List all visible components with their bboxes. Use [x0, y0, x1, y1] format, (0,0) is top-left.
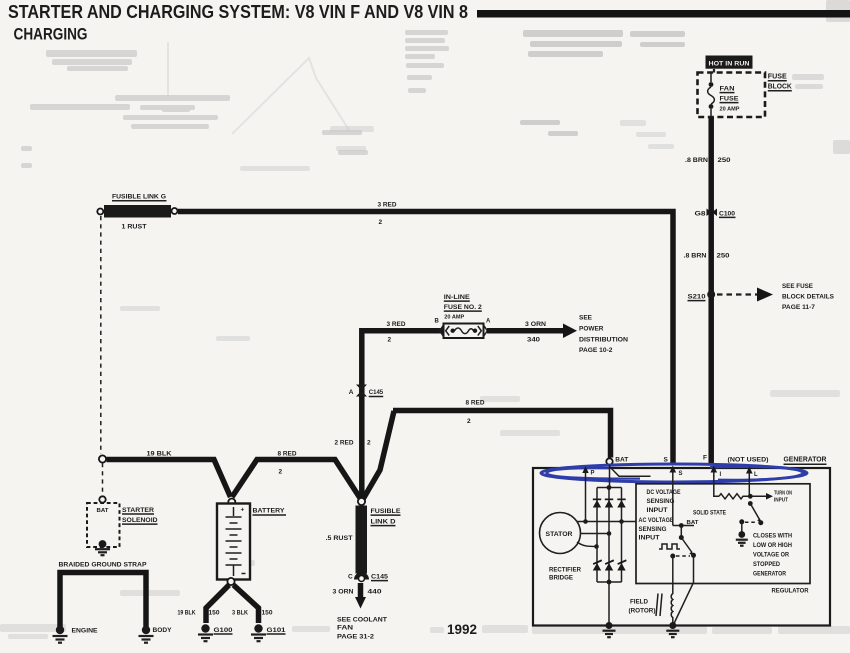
svg-text:TURN ON: TURN ON [774, 491, 792, 497]
svg-text:FUSE NO. 2: FUSE NO. 2 [444, 304, 482, 311]
svg-text:2: 2 [388, 337, 392, 344]
svg-text:SENSING: SENSING [639, 527, 667, 533]
svg-text:A: A [486, 318, 491, 324]
svg-text:PAGE 11-7: PAGE 11-7 [782, 304, 815, 311]
svg-text:IN-LINE: IN-LINE [444, 294, 471, 301]
svg-text:250: 250 [717, 253, 730, 260]
svg-text:LOW OR HIGH: LOW OR HIGH [753, 543, 792, 549]
svg-text:C: C [348, 574, 353, 581]
svg-text:PAGE 31-2: PAGE 31-2 [337, 634, 374, 641]
svg-text:.5 RUST: .5 RUST [326, 535, 353, 542]
svg-text:FIELD: FIELD [630, 600, 649, 606]
svg-text:CLOSES WITH: CLOSES WITH [753, 534, 792, 540]
svg-text:F: F [703, 455, 707, 462]
svg-text:2 RED: 2 RED [335, 440, 354, 447]
svg-text:BLOCK: BLOCK [768, 84, 792, 91]
svg-text:FUSE: FUSE [720, 97, 739, 103]
svg-text:C145: C145 [371, 574, 388, 581]
svg-text:BAT: BAT [687, 520, 700, 526]
svg-text:150: 150 [262, 611, 274, 617]
svg-text:S: S [664, 457, 669, 464]
svg-text:3 ORN: 3 ORN [333, 589, 354, 596]
svg-text:GENERATOR: GENERATOR [753, 572, 787, 578]
svg-text:8 RED: 8 RED [466, 400, 485, 407]
svg-text:2: 2 [379, 219, 383, 226]
svg-text:3 BLK: 3 BLK [232, 611, 249, 617]
svg-text:3 ORN: 3 ORN [525, 321, 546, 328]
svg-text:STARTER: STARTER [122, 507, 154, 514]
svg-text:2: 2 [367, 440, 371, 447]
svg-text:SOLENOID: SOLENOID [122, 517, 158, 524]
svg-text:BAT: BAT [97, 508, 109, 514]
svg-text:BRAIDED GROUND STRAP: BRAIDED GROUND STRAP [59, 562, 148, 569]
svg-text:2: 2 [467, 418, 471, 425]
svg-text:G100: G100 [214, 627, 234, 634]
svg-text:P: P [591, 471, 595, 477]
svg-text:DC VOLTAGE: DC VOLTAGE [647, 490, 681, 496]
svg-text:20 AMP: 20 AMP [444, 314, 464, 320]
svg-text:POWER: POWER [579, 326, 604, 333]
svg-text:3 RED: 3 RED [387, 321, 406, 328]
svg-text:1 RUST: 1 RUST [122, 224, 147, 231]
svg-text:BAT: BAT [615, 457, 628, 464]
svg-text:FUSE: FUSE [768, 74, 787, 81]
svg-text:(ROTOR): (ROTOR) [629, 609, 656, 615]
svg-text:(NOT USED): (NOT USED) [728, 457, 769, 464]
svg-text:440: 440 [368, 589, 382, 596]
svg-text:G8: G8 [695, 211, 706, 218]
svg-text:.8 BRN: .8 BRN [684, 253, 707, 260]
svg-text:BRIDGE: BRIDGE [549, 576, 573, 582]
svg-text:SENSING: SENSING [647, 499, 675, 505]
svg-text:SEE: SEE [579, 315, 593, 322]
svg-text:.8 BRN: .8 BRN [685, 157, 708, 164]
svg-text:SEE COOLANT: SEE COOLANT [337, 617, 387, 624]
svg-text:ENGINE: ENGINE [72, 629, 98, 635]
svg-text:C145: C145 [369, 389, 384, 396]
svg-text:PAGE 10-2: PAGE 10-2 [579, 347, 613, 354]
svg-text:FAN: FAN [337, 625, 353, 632]
svg-text:INPUT: INPUT [647, 508, 668, 514]
svg-text:BODY: BODY [153, 628, 172, 634]
svg-text:DISTRIBUTION: DISTRIBUTION [579, 337, 628, 344]
svg-text:L: L [754, 472, 758, 478]
svg-text:19 BLK: 19 BLK [147, 451, 172, 458]
svg-text:BLOCK DETAILS: BLOCK DETAILS [782, 294, 835, 301]
svg-text:S: S [679, 471, 683, 477]
svg-text:20 AMP: 20 AMP [720, 107, 740, 113]
svg-text:2: 2 [279, 469, 283, 476]
svg-text:19 BLK: 19 BLK [178, 611, 197, 617]
svg-text:HOT IN RUN: HOT IN RUN [709, 60, 750, 67]
svg-text:S210: S210 [688, 294, 706, 301]
svg-text:G101: G101 [267, 627, 287, 634]
svg-text:CHARGING: CHARGING [14, 26, 88, 44]
svg-text:STARTER AND CHARGING SYSTEM: V: STARTER AND CHARGING SYSTEM: V8 VIN F AN… [8, 1, 468, 22]
svg-text:C100: C100 [719, 211, 735, 218]
svg-text:SOLID STATE: SOLID STATE [693, 511, 726, 517]
svg-text:340: 340 [527, 337, 540, 344]
svg-text:INPUT: INPUT [639, 536, 660, 542]
svg-text:A: A [349, 389, 354, 396]
svg-text:1992: 1992 [447, 622, 477, 637]
svg-text:AC VOLTAGE: AC VOLTAGE [639, 518, 674, 524]
svg-text:REGULATOR: REGULATOR [772, 588, 809, 595]
svg-text:FAN: FAN [720, 87, 735, 93]
svg-text:INPUT: INPUT [774, 498, 789, 504]
svg-text:FUSIBLE LINK G: FUSIBLE LINK G [112, 194, 166, 201]
svg-text:BATTERY: BATTERY [253, 508, 286, 515]
svg-text:VOLTAGE OR: VOLTAGE OR [753, 553, 790, 559]
svg-text:STOPPED: STOPPED [753, 562, 781, 568]
svg-text:B: B [435, 319, 440, 325]
svg-text:8 RED: 8 RED [278, 451, 297, 458]
svg-text:FUSIBLE: FUSIBLE [371, 508, 402, 515]
svg-text:250: 250 [718, 157, 731, 164]
svg-text:RECTIFIER: RECTIFIER [549, 568, 582, 574]
svg-text:LINK D: LINK D [371, 519, 396, 526]
svg-text:STATOR: STATOR [546, 532, 574, 538]
svg-text:GENERATOR: GENERATOR [784, 455, 828, 464]
svg-text:+: + [241, 507, 245, 514]
svg-text:3 RED: 3 RED [378, 202, 397, 209]
svg-text:150: 150 [209, 611, 221, 617]
svg-text:SEE FUSE: SEE FUSE [782, 283, 814, 290]
